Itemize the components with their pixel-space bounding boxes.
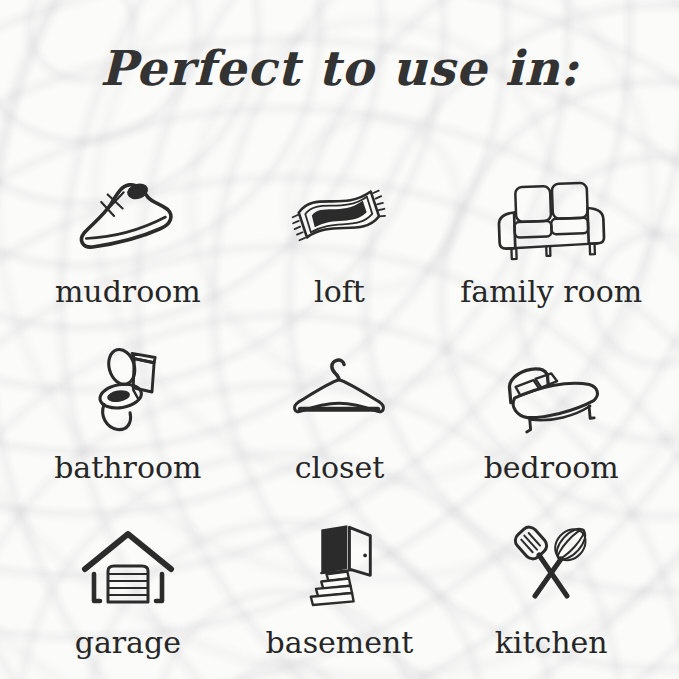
sneaker-icon [68,169,188,265]
grid-item-bathroom: bathroom [22,317,234,486]
grid-item-label: bathroom [54,453,201,483]
infographic: Perfect to use in: mudroom [0,0,679,679]
grid-item-label: loft [314,277,365,307]
grid-item-label: garage [75,628,181,658]
grid-item-label: bedroom [484,453,619,483]
garage-icon [68,520,188,616]
grid-item-label: mudroom [55,277,201,307]
toilet-icon [68,345,188,441]
grid-item-garage: garage [22,493,234,662]
rug-icon [279,169,399,265]
grid-item-closet: closet [234,317,446,486]
sofa-icon [491,169,611,265]
grid-item-label: basement [266,628,414,658]
utensils-icon [491,520,611,616]
grid-item-label: closet [295,453,385,483]
page-title: Perfect to use in: [0,40,679,96]
grid-item-bedroom: bedroom [445,317,657,486]
grid-item-family-room: family room [445,142,657,311]
bed-icon [491,345,611,441]
hanger-icon [279,345,399,441]
grid-item-label: kitchen [495,628,608,658]
grid-item-loft: loft [234,142,446,311]
grid-item-mudroom: mudroom [22,142,234,311]
grid-item-basement: basement [234,493,446,662]
grid-item-kitchen: kitchen [445,493,657,662]
grid-item-label: family room [460,277,642,307]
room-grid: mudroom loft [22,142,657,662]
basement-door-icon [279,520,399,616]
